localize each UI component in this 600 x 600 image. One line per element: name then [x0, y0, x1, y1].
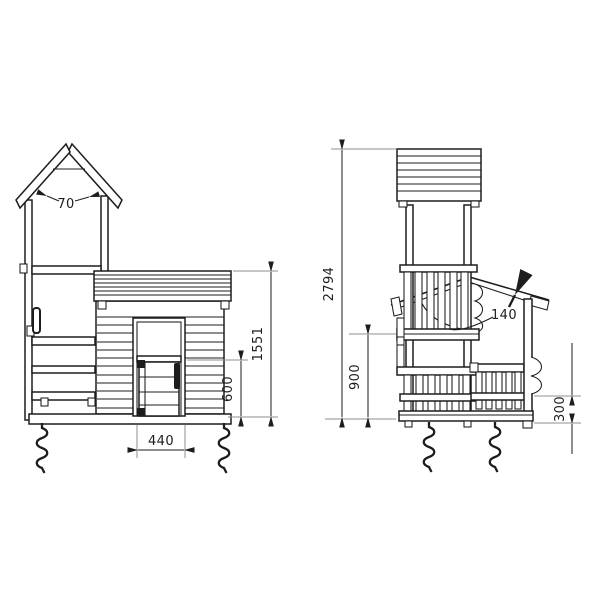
side-lower-railing	[397, 367, 476, 412]
side-lower-deck	[400, 394, 476, 401]
front-door	[133, 318, 185, 416]
door-hinge-top	[137, 360, 145, 368]
ground-screw-icon	[424, 422, 435, 472]
side-ground-screws	[424, 422, 501, 472]
side-platform	[397, 329, 479, 340]
door-handle	[174, 363, 180, 389]
front-left-rails	[27, 308, 95, 406]
side-tower-roof	[397, 149, 481, 207]
grip-handle	[33, 308, 40, 333]
dim-label-platform-height: 900	[348, 364, 363, 390]
dim-label-door-width: 440	[148, 434, 174, 449]
front-view: 70 1551 600 440	[16, 144, 278, 473]
porch-deck	[471, 393, 526, 400]
dim-label-roof-board: 70	[57, 197, 74, 212]
dim-label-deck-height: 300	[553, 396, 568, 422]
ground-screw-icon	[219, 423, 230, 473]
dim-label-height: 1551	[251, 327, 266, 362]
door-lower-panel	[137, 360, 180, 416]
side-ladder-stile	[397, 318, 404, 368]
roof-fascia-left	[391, 297, 402, 316]
ground-screw-icon	[37, 423, 48, 473]
dim-label-total-height: 2794	[322, 267, 337, 302]
technical-drawing-canvas: 70 1551 600 440	[0, 0, 600, 600]
dim-label-door-height: 600	[221, 376, 236, 402]
ground-screw-icon	[490, 422, 501, 472]
door-hinge-bottom	[137, 408, 145, 416]
drawing-svg: 70 1551 600 440	[0, 0, 600, 600]
side-base-beam	[399, 411, 533, 428]
wave-handle	[531, 357, 542, 394]
front-ground-screws	[37, 423, 230, 473]
front-base-beam	[29, 414, 231, 424]
side-view: 2794 900 140 300	[322, 149, 581, 472]
dim-label-board-width: 140	[491, 308, 517, 323]
front-tower-platform	[20, 264, 101, 274]
side-right-post	[524, 299, 542, 421]
side-porch	[470, 363, 526, 409]
